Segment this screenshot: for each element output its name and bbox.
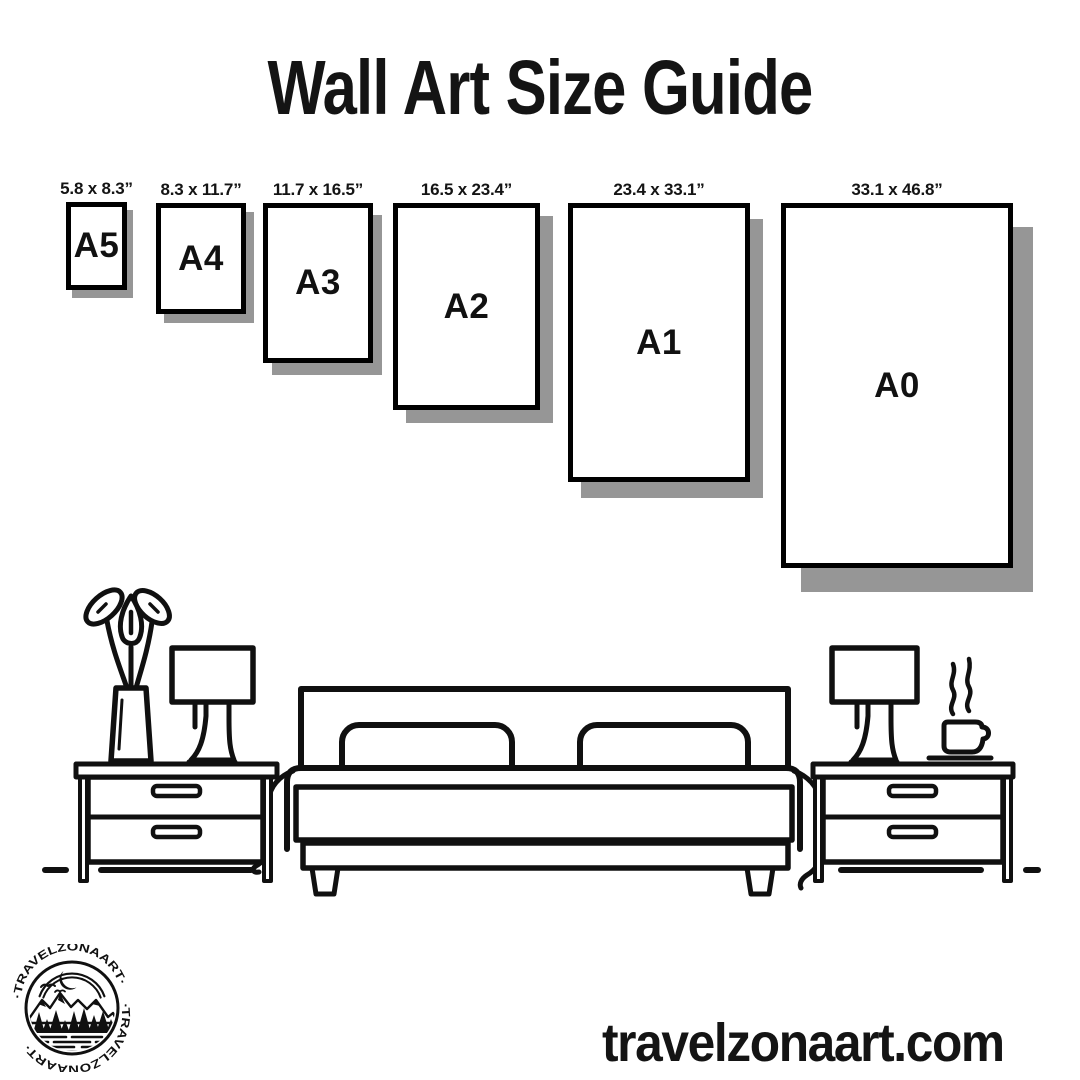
website-url: travelzonaart.com <box>602 1012 1004 1074</box>
frame-a5-dimensions: 5.8 x 8.3” <box>60 179 133 199</box>
frame-a1-dimensions: 23.4 x 33.1” <box>613 180 704 200</box>
vase-body <box>111 688 151 761</box>
mattress-blanket <box>287 768 800 849</box>
vase-plant-icon <box>80 584 175 761</box>
steam-icon <box>967 659 970 711</box>
frame-a0-dimensions: 33.1 x 46.8” <box>851 180 942 200</box>
cup-body <box>944 722 989 752</box>
frame-a2: 16.5 x 23.4” A2 <box>393 203 540 410</box>
bedroom-scene-illustration <box>0 555 1080 900</box>
bed-leg-left <box>312 868 338 894</box>
frame-a4: 8.3 x 11.7” A4 <box>156 203 246 314</box>
table-lamp-right-icon <box>832 648 917 762</box>
frame-a1-code: A1 <box>636 323 682 363</box>
frame-a2-dimensions: 16.5 x 23.4” <box>421 180 512 200</box>
frame-a4-dimensions: 8.3 x 11.7” <box>161 180 242 200</box>
drawer-handle <box>889 827 936 837</box>
frame-a3-code: A3 <box>295 263 341 303</box>
drawer-handle <box>153 786 200 796</box>
nightstand-left-icon <box>76 764 277 881</box>
bed-base <box>303 843 788 868</box>
nightstand-top <box>813 764 1013 777</box>
frame-a3-dimensions: 11.7 x 16.5” <box>273 180 363 200</box>
nightstand-right-icon <box>813 764 1013 881</box>
frame-a0-code: A0 <box>874 366 920 406</box>
frame-a5-code: A5 <box>74 226 120 266</box>
nightstand-top <box>76 764 277 777</box>
bed-leg-right <box>747 868 773 894</box>
lamp-shade <box>832 648 917 702</box>
coffee-cup-icon <box>929 659 991 758</box>
frame-a3: 11.7 x 16.5” A3 <box>263 203 373 363</box>
drawer-handle <box>889 786 936 796</box>
frame-a5: 5.8 x 8.3” A5 <box>66 202 127 290</box>
table-lamp-left-icon <box>172 648 253 762</box>
bed-icon <box>253 689 821 894</box>
frame-a1: 23.4 x 33.1” A1 <box>568 203 750 482</box>
frame-a2-code: A2 <box>444 287 490 327</box>
drawer-handle <box>153 827 200 837</box>
frame-a4-code: A4 <box>178 239 224 279</box>
frame-a0: 33.1 x 46.8” A0 <box>781 203 1013 568</box>
steam-icon <box>951 664 954 714</box>
brand-logo-badge: ·TRAVELZONAART· ·TRAVELZONAART· <box>8 944 136 1072</box>
lamp-shade <box>172 648 253 702</box>
page-title: Wall Art Size Guide <box>108 44 972 133</box>
wall-art-size-guide-infographic: Wall Art Size Guide 5.8 x 8.3” A5 8.3 x … <box>0 0 1080 1080</box>
